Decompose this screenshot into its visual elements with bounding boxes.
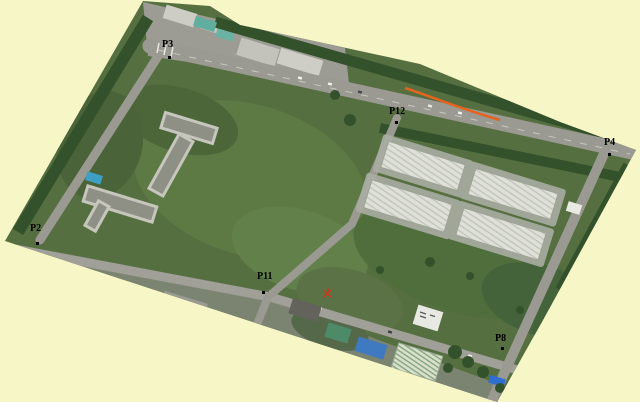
- figure-canvas: P3 P12 P4 P2 P11 P8: [0, 0, 640, 402]
- control-point-dot-P2: [36, 242, 39, 245]
- control-point-label-P12: P12: [389, 107, 405, 117]
- control-point-label-P4: P4: [604, 138, 615, 148]
- control-point-dot-P12: [395, 121, 398, 124]
- control-point-dot-P4: [608, 153, 611, 156]
- control-point-label-P3: P3: [162, 40, 173, 50]
- control-point-label-P2: P2: [30, 224, 41, 234]
- control-point-dot-P11: [262, 291, 265, 294]
- control-point-label-P8: P8: [495, 334, 506, 344]
- control-point-label-P11: P11: [257, 272, 273, 282]
- control-point-dot-P3: [168, 56, 171, 59]
- control-point-dot-P8: [501, 347, 504, 350]
- orthophoto-image: [0, 0, 640, 402]
